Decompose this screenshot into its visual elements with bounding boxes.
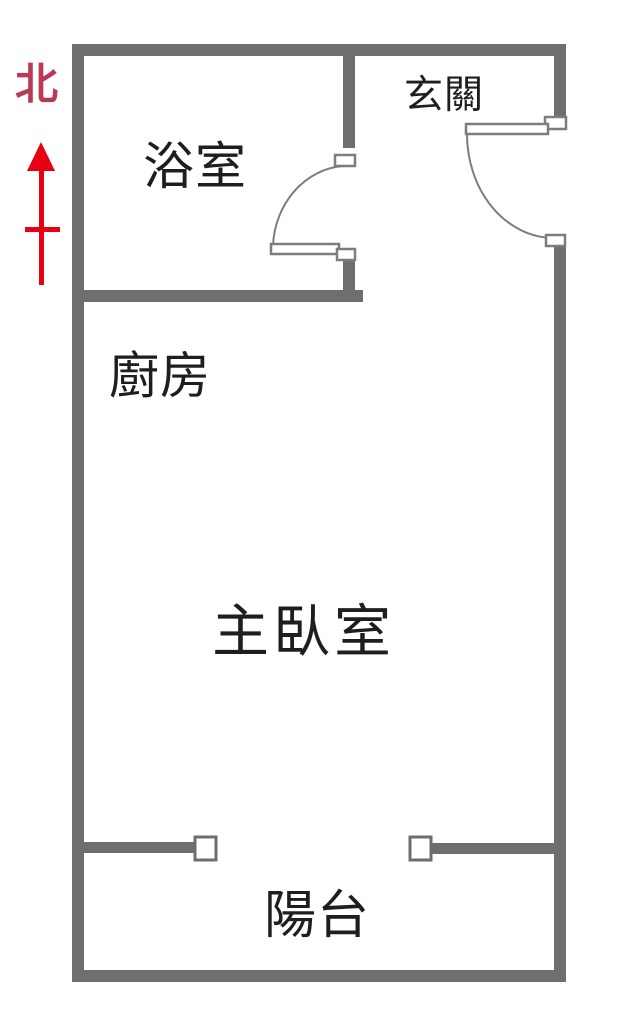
bathroom-door-swing-arc [273,166,342,245]
room-label-balcony: 陽台 [264,890,370,942]
room-label-master-bedroom: 主臥室 [212,604,395,661]
wall-bottom [72,970,566,982]
floor-plan-drawing [0,0,622,1024]
wall-right-upper [554,44,566,118]
north-arrow-icon [25,142,60,285]
wall-balcony-right [431,843,554,854]
floor-plan-canvas: 北 浴室 玄關 廚房 主臥室 陽台 [0,0,622,1024]
north-arrow-head [27,142,55,171]
room-label-kitchen: 廚房 [109,351,211,401]
room-label-entryway: 玄關 [404,76,484,115]
bathroom-door-frame-bottom [337,249,355,260]
bathroom-door [271,155,355,260]
entry-door [466,117,566,246]
wall-bathroom-upper [343,44,355,148]
balcony-post-right [410,837,431,860]
entry-door-swing-arc [467,134,553,238]
room-label-bathroom: 浴室 [143,141,247,192]
bathroom-door-frame-top [335,155,355,166]
balcony-opening [195,837,431,860]
entry-door-leaf [466,124,548,134]
wall-bathroom-bottom [72,290,363,302]
bathroom-door-leaf [271,244,339,254]
wall-right-lower [554,246,566,982]
balcony-post-left [195,837,216,860]
north-label: 北 [15,64,58,107]
north-arrow-shaft [39,168,44,285]
wall-top [72,44,566,56]
entry-door-frame-bottom [546,235,565,246]
north-arrow-crossbar [25,227,60,232]
wall-left [72,44,84,982]
wall-balcony-left [72,842,194,853]
